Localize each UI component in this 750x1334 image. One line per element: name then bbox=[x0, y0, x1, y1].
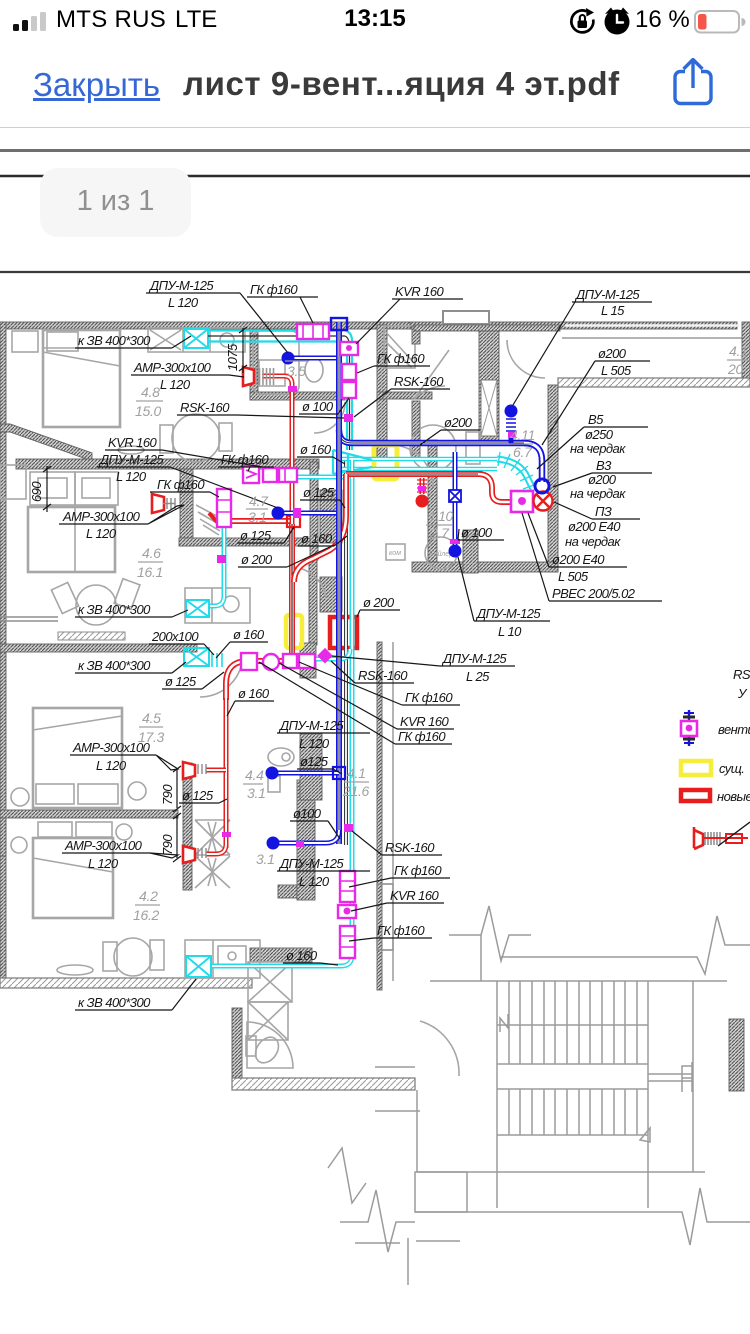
svg-text:ø 125: ø 125 bbox=[240, 528, 272, 543]
svg-text:ø 200: ø 200 bbox=[363, 595, 395, 610]
svg-text:ГК ф160: ГК ф160 bbox=[377, 923, 425, 938]
svg-text:4.5: 4.5 bbox=[142, 710, 161, 726]
svg-text:новые: новые bbox=[717, 789, 750, 804]
svg-text:к ЗВ 400*300: к ЗВ 400*300 bbox=[78, 658, 151, 673]
svg-text:ø200: ø200 bbox=[598, 346, 627, 361]
svg-text:4.2: 4.2 bbox=[139, 888, 158, 904]
svg-text:на чердак: на чердак bbox=[570, 486, 626, 501]
svg-text:ДПУ-М-125: ДПУ-М-125 bbox=[475, 606, 541, 621]
svg-text:ø 100: ø 100 bbox=[461, 525, 493, 540]
svg-text:ø 160: ø 160 bbox=[286, 948, 318, 963]
svg-text:L 120: L 120 bbox=[96, 758, 127, 773]
svg-text:200x100: 200x100 bbox=[151, 629, 199, 644]
svg-text:4.6: 4.6 bbox=[142, 545, 161, 561]
svg-text:ø 125: ø 125 bbox=[303, 485, 335, 500]
svg-text:21.6: 21.6 bbox=[342, 783, 370, 799]
svg-text:ø 160: ø 160 bbox=[300, 442, 332, 457]
svg-text:L 120: L 120 bbox=[116, 469, 147, 484]
svg-text:4.11: 4.11 bbox=[510, 427, 535, 443]
svg-text:ø100: ø100 bbox=[293, 806, 322, 821]
svg-text:16.1: 16.1 bbox=[137, 564, 163, 580]
svg-text:16.2: 16.2 bbox=[133, 907, 160, 923]
svg-text:KVR 160: KVR 160 bbox=[108, 435, 158, 450]
svg-text:ø 160: ø 160 bbox=[233, 627, 265, 642]
svg-text:690: 690 bbox=[29, 481, 44, 502]
svg-text:3.1: 3.1 bbox=[248, 509, 267, 525]
svg-text:L 120: L 120 bbox=[160, 377, 191, 392]
svg-text:ø 125: ø 125 bbox=[182, 788, 214, 803]
svg-text:АМР-300x100: АМР-300x100 bbox=[64, 838, 143, 853]
svg-text:ø 125: ø 125 bbox=[165, 674, 197, 689]
svg-text:ø200: ø200 bbox=[588, 472, 617, 487]
svg-text:ДПУ-М-125: ДПУ-М-125 bbox=[98, 452, 164, 467]
svg-text:ДПУ-М-125: ДПУ-М-125 bbox=[574, 287, 640, 302]
svg-text:на чердак: на чердак bbox=[565, 534, 621, 549]
svg-text:KVR 160: KVR 160 bbox=[395, 284, 445, 299]
svg-text:ГК ф160: ГК ф160 bbox=[157, 477, 205, 492]
svg-text:4.10: 4.10 bbox=[427, 508, 454, 524]
svg-text:к ЗВ 400*300: к ЗВ 400*300 bbox=[78, 602, 151, 617]
svg-text:ГК ф160: ГК ф160 bbox=[405, 690, 453, 705]
svg-text:ø250: ø250 bbox=[585, 427, 614, 442]
svg-text:KVR 160: KVR 160 bbox=[390, 888, 440, 903]
svg-text:4.7: 4.7 bbox=[249, 493, 269, 509]
svg-text:790: 790 bbox=[160, 834, 175, 855]
svg-text:венти: венти bbox=[718, 722, 750, 737]
svg-text:У: У bbox=[737, 686, 748, 701]
svg-text:L 120: L 120 bbox=[299, 736, 330, 751]
svg-text:ДПУ-М-125: ДПУ-М-125 bbox=[441, 651, 507, 666]
svg-text:L 15: L 15 bbox=[601, 303, 625, 318]
svg-text:ø200 Е40: ø200 Е40 bbox=[568, 519, 621, 534]
svg-text:790: 790 bbox=[160, 784, 175, 805]
svg-text:20.: 20. bbox=[727, 361, 747, 377]
svg-text:В3: В3 bbox=[596, 458, 612, 473]
svg-text:15.0: 15.0 bbox=[135, 403, 162, 419]
svg-text:RSK-160: RSK-160 bbox=[394, 374, 444, 389]
svg-text:ком: ком bbox=[389, 550, 401, 557]
svg-text:ДПУ-М-125: ДПУ-М-125 bbox=[278, 856, 344, 871]
svg-text:ГК ф160: ГК ф160 bbox=[398, 729, 446, 744]
svg-text:к ЗВ 400*300: к ЗВ 400*300 bbox=[78, 995, 151, 1010]
svg-text:RSK-160: RSK-160 bbox=[385, 840, 435, 855]
svg-text:L 120: L 120 bbox=[88, 856, 119, 871]
svg-text:L 120: L 120 bbox=[86, 526, 117, 541]
svg-text:сущ.: сущ. bbox=[719, 761, 744, 776]
svg-text:4.1: 4.1 bbox=[729, 343, 748, 359]
svg-text:L 10: L 10 bbox=[498, 624, 522, 639]
svg-text:RSК: RSК bbox=[733, 667, 750, 682]
svg-text:ø 160: ø 160 bbox=[238, 686, 270, 701]
svg-text:ø200: ø200 bbox=[444, 415, 473, 430]
svg-text:АМР-300x100: АМР-300x100 bbox=[72, 740, 151, 755]
svg-text:3.5: 3.5 bbox=[287, 363, 306, 379]
svg-text:ГК ф160: ГК ф160 bbox=[221, 452, 269, 467]
svg-text:РВЕС 200/5.02: РВЕС 200/5.02 bbox=[552, 586, 636, 601]
svg-text:ø125: ø125 bbox=[300, 754, 329, 769]
svg-text:2.7: 2.7 bbox=[429, 525, 450, 541]
svg-text:В5: В5 bbox=[588, 412, 604, 427]
svg-text:4.8: 4.8 bbox=[141, 384, 160, 400]
svg-text:на чердак: на чердак bbox=[570, 441, 626, 456]
svg-text:ГК ф160: ГК ф160 bbox=[377, 351, 425, 366]
svg-text:6.7: 6.7 bbox=[513, 444, 533, 460]
svg-text:L 120: L 120 bbox=[299, 874, 330, 889]
svg-text:L 120: L 120 bbox=[168, 295, 199, 310]
svg-text:L 25: L 25 bbox=[466, 669, 490, 684]
svg-text:RSK-160: RSK-160 bbox=[180, 400, 230, 415]
svg-text:ДПУ-М-125: ДПУ-М-125 bbox=[278, 718, 344, 733]
svg-text:RSK-160: RSK-160 bbox=[358, 668, 408, 683]
svg-text:4.1: 4.1 bbox=[347, 765, 366, 781]
svg-text:к ЗВ 400*300: к ЗВ 400*300 bbox=[78, 333, 151, 348]
svg-text:ø 160: ø 160 bbox=[301, 531, 333, 546]
svg-text:ПЗ: ПЗ bbox=[595, 504, 612, 519]
svg-text:1075: 1075 bbox=[225, 343, 240, 371]
svg-text:ГК ф160: ГК ф160 bbox=[250, 282, 298, 297]
svg-text:L 505: L 505 bbox=[601, 363, 632, 378]
svg-text:ø200 Е40: ø200 Е40 bbox=[552, 552, 605, 567]
svg-text:АМР-300x100: АМР-300x100 bbox=[62, 509, 141, 524]
svg-text:KVR 160: KVR 160 bbox=[400, 714, 450, 729]
svg-text:L 505: L 505 bbox=[558, 569, 589, 584]
svg-text:ДПУ-М-125: ДПУ-М-125 bbox=[148, 278, 214, 293]
svg-text:ø 100: ø 100 bbox=[302, 399, 334, 414]
svg-text:ø 200: ø 200 bbox=[241, 552, 273, 567]
svg-text:3.1: 3.1 bbox=[247, 785, 266, 801]
svg-text:4.4: 4.4 bbox=[245, 767, 264, 783]
svg-text:ГК ф160: ГК ф160 bbox=[394, 863, 442, 878]
svg-text:АМР-300x100: АМР-300x100 bbox=[133, 360, 212, 375]
svg-text:3.1: 3.1 bbox=[256, 851, 275, 867]
